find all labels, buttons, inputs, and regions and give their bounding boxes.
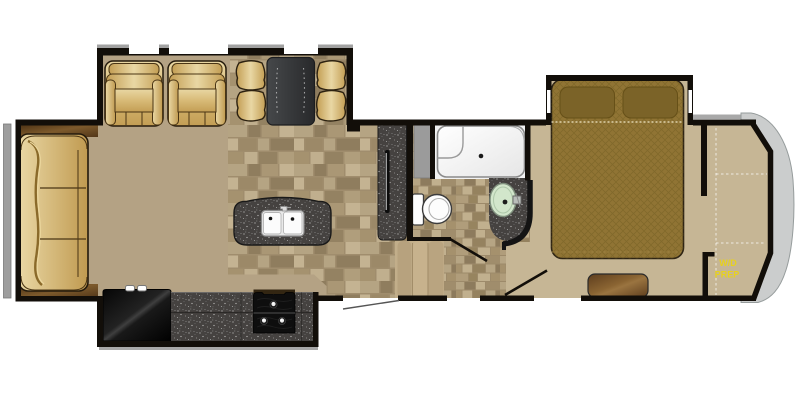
svg-text:W/D: W/D [719,258,737,268]
svg-text:PREP: PREP [715,270,740,280]
